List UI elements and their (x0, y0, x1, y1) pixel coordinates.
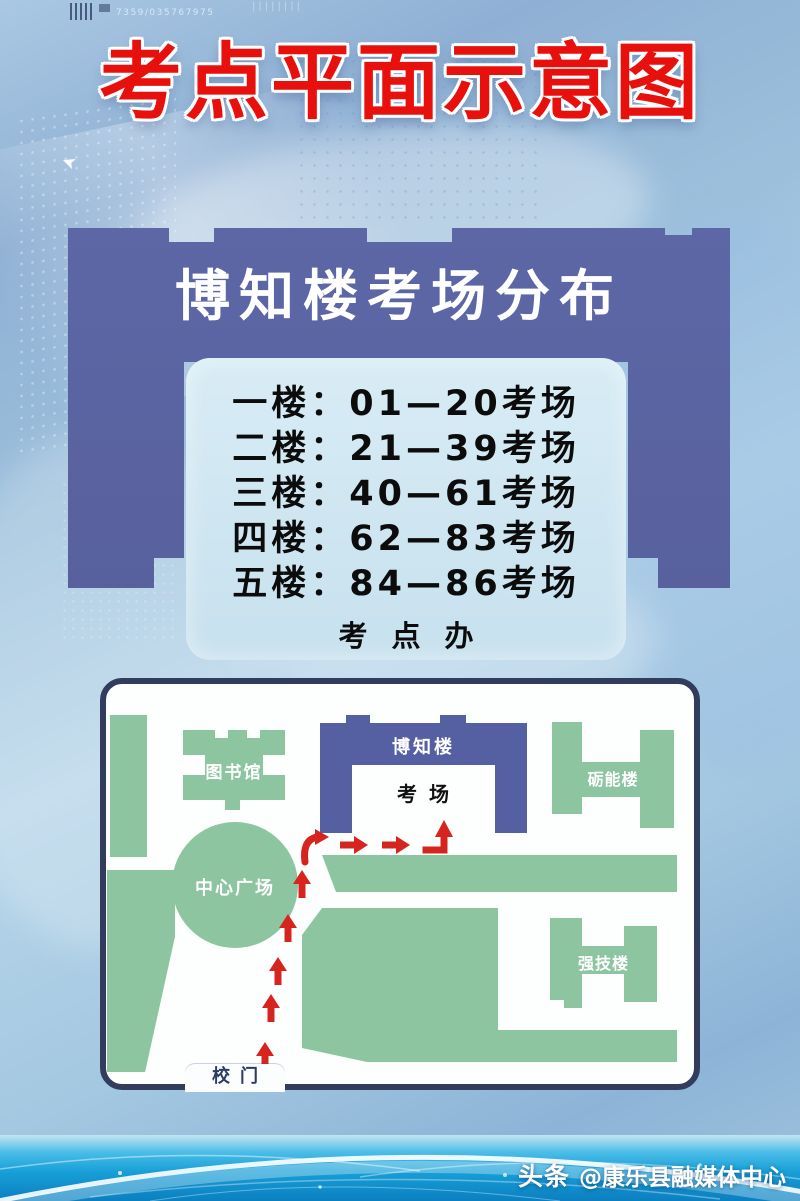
media-account-text: @康乐县融媒体中心 (579, 1158, 786, 1192)
page-title: 考点平面示意图 (0, 28, 800, 138)
tick-marks-decor: |||||||| (252, 1, 303, 12)
floor-item: 五楼：84—86考场 (186, 562, 626, 607)
barcode-icon (70, 3, 92, 20)
floor-distribution-panel: 一楼：01—20考场 二楼：21—39考场 三楼：40—61考场 四楼：62—8… (186, 358, 626, 660)
floor-item: 一楼：01—20考场 (186, 382, 626, 427)
floor-item: 四楼：62—83考场 (186, 517, 626, 562)
footer-band: 头条 @康乐县融媒体中心 (0, 1135, 800, 1201)
toutiao-logo-text: 头条 (518, 1157, 570, 1193)
route-arrow-icon (106, 684, 694, 1084)
pixel-chip-icon (99, 4, 110, 12)
floor-item: 三楼：40—61考场 (186, 472, 626, 517)
exam-site-poster: 7359/035767975 |||||||| ➤ 考点平面示意图 博知楼考场分… (0, 0, 800, 1201)
serial-number-text: 7359/035767975 (116, 8, 214, 18)
exam-office-label: 考点办 (186, 613, 626, 655)
decor-arrow-icon: ➤ (59, 150, 79, 174)
banner-title: 博知楼考场分布 (68, 260, 730, 332)
floor-list: 一楼：01—20考场 二楼：21—39考场 三楼：40—61考场 四楼：62—8… (186, 382, 626, 607)
toutiao-watermark: 头条 @康乐县融媒体中心 (518, 1157, 786, 1193)
campus-map: 图书馆 中心广场 博知楼 考场 砺能楼 强技楼 (100, 678, 700, 1090)
school-gate-tab: 校门 (185, 1064, 285, 1092)
floor-item: 二楼：21—39考场 (186, 427, 626, 472)
